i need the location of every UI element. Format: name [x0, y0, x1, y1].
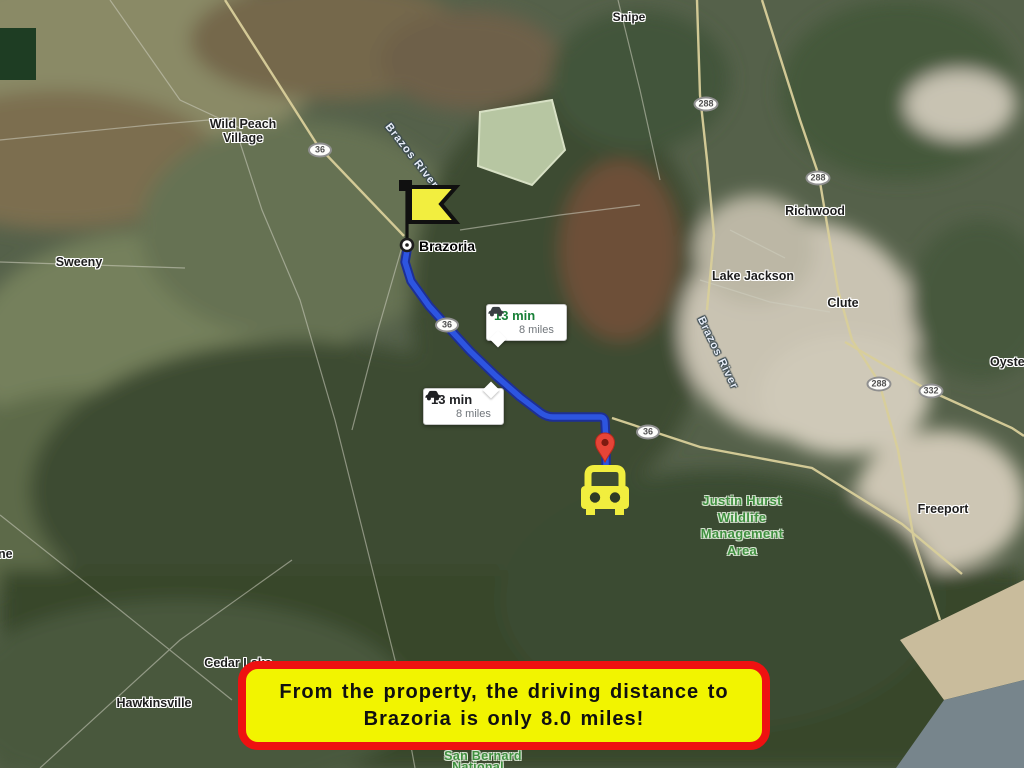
route-shield-36: 36 [435, 318, 459, 333]
banner-line-1: From the property, the driving distance … [279, 679, 728, 706]
bubble-row: 13 min [431, 392, 495, 407]
satellite-map: 36 36 36 288 288 288 332 Snipe Wild Peac… [0, 0, 1024, 768]
town-label-brazoria: Brazoria [419, 238, 475, 254]
car-glyph-icon [487, 305, 505, 318]
property-flag-marker [399, 180, 456, 247]
route-start-circle [401, 239, 413, 251]
route-path [405, 250, 606, 467]
route-info-bubble-1: 13 min 8 miles [486, 304, 567, 341]
route-overlay [0, 0, 1024, 768]
distance-text: 8 miles [456, 408, 495, 420]
car-icon [581, 469, 629, 516]
route-info-bubble-2: 13 min 8 miles [423, 388, 504, 425]
distance-banner: From the property, the driving distance … [238, 661, 770, 750]
bubble-row: 13 min [494, 308, 558, 323]
car-glyph-icon [424, 389, 442, 402]
distance-text: 8 miles [519, 324, 558, 336]
banner-line-2: Brazoria is only 8.0 miles! [364, 706, 645, 733]
destination-pin-icon [596, 433, 615, 462]
